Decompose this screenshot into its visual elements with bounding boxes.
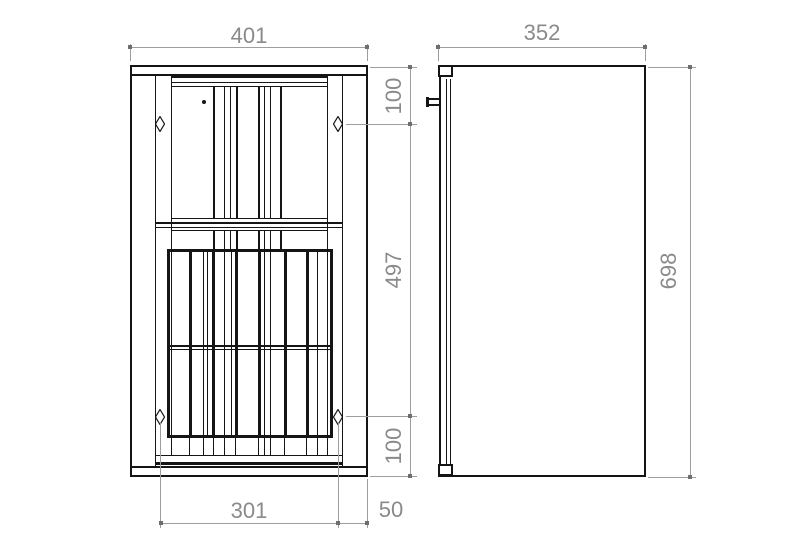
dimension-line	[408, 474, 412, 478]
dim-label-front-width: 401	[209, 25, 289, 47]
dimension-line	[338, 423, 339, 528]
dim-label-side-depth: 352	[502, 22, 582, 44]
dimension-line	[346, 124, 417, 125]
dimension-line	[408, 65, 412, 69]
dimensions: 401 352 100 497 100	[0, 0, 800, 551]
dim-label-side-height: 698	[658, 241, 680, 301]
dimension-line	[688, 65, 692, 69]
dim-label-mount-bottom-offset: 100	[383, 416, 405, 476]
dimension-line	[128, 45, 132, 49]
dimension-line	[643, 45, 647, 49]
dimension-line	[336, 521, 340, 525]
dim-label-mount-horizontal-span: 301	[209, 500, 289, 522]
dimension-line	[688, 475, 692, 479]
dim-label-mount-edge-offset: 50	[368, 499, 414, 521]
dim-label-mount-top-offset: 100	[383, 66, 405, 126]
dimension-line	[436, 45, 440, 49]
dimension-line	[438, 47, 646, 48]
dimension-line	[365, 521, 369, 525]
dimension-line	[408, 122, 412, 126]
dim-label-mount-vertical-span: 497	[383, 240, 405, 300]
dimension-line	[160, 423, 161, 528]
dimension-line	[159, 521, 163, 525]
dimension-line	[346, 416, 417, 417]
dimension-line	[408, 414, 412, 418]
technical-drawing-canvas: 401 352 100 497 100	[0, 0, 800, 551]
dimension-line	[365, 45, 369, 49]
dimension-line	[690, 67, 691, 478]
